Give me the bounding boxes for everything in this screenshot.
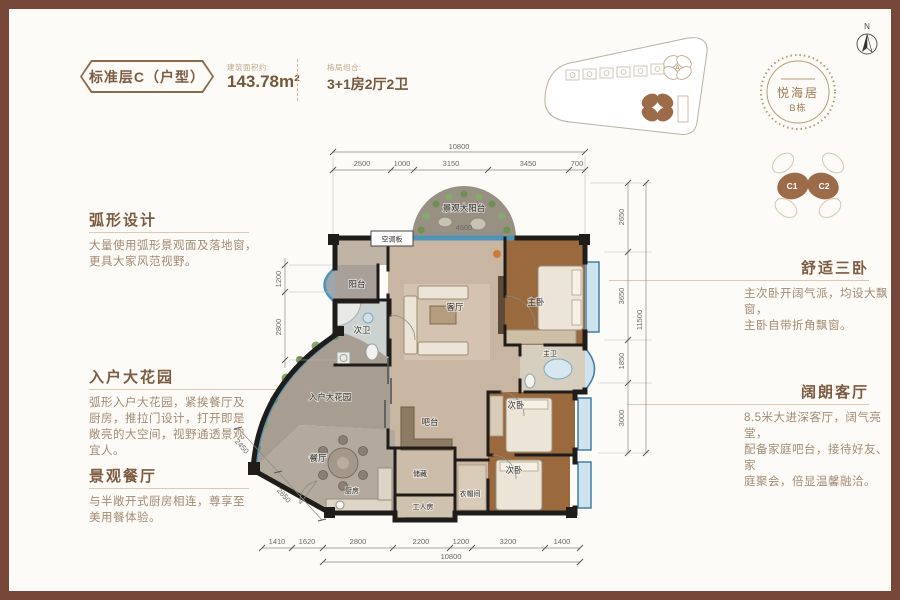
dim-bot-7: 1400 (554, 537, 571, 546)
label-bed2: 次卧 (507, 400, 525, 410)
dim-top-5: 700 (571, 159, 584, 168)
label-storage: 储藏 (413, 469, 427, 478)
dim-bot-5: 1200 (453, 537, 470, 546)
label-cloak: 衣帽间 (460, 489, 481, 498)
label-balcony-top: 景观大阳台 (443, 203, 486, 213)
dim-top-4: 3450 (520, 159, 537, 168)
dim-bottom-total: 10800 (441, 552, 462, 561)
dim-right-3: 1850 (617, 353, 626, 370)
label-master: 主卧 (527, 297, 545, 307)
dim-top-total: 10800 (449, 142, 470, 151)
dim-bot-4: 2200 (413, 537, 430, 546)
compass-icon: N (857, 22, 877, 54)
brand-building: B栋 (789, 102, 806, 113)
label-balcony-left: 阳台 (348, 279, 365, 289)
dim-bot-1: 1410 (269, 537, 286, 546)
unit-badges: C1 C2 (769, 149, 848, 221)
dim-bot-6: 3200 (500, 537, 517, 546)
site-label-box (678, 96, 688, 122)
label-bath2: 次卫 (353, 325, 371, 335)
floorplan-poster: 标准层C（户型） 建筑面积约: 143.78m² 格局组合: 3+1房2厅2卫 … (0, 0, 900, 600)
dim-left-2: 2800 (274, 319, 283, 336)
site-tower-a-label: A (675, 65, 680, 72)
ac-panel-label: 空调板 (382, 235, 403, 244)
unit-c2-label: C2 (819, 181, 830, 191)
dim-balcony: 4600 (456, 223, 473, 232)
dim-right-total: 11500 (635, 310, 644, 330)
label-bar: 吧台 (421, 417, 438, 427)
label-dining: 餐厅 (309, 453, 327, 463)
label-maid: 工人房 (413, 502, 434, 511)
dim-left-1: 1200 (274, 271, 283, 288)
site-tower-b-label: B (655, 104, 660, 113)
compass-n-label: N (864, 22, 870, 31)
unit-c1-label: C1 (787, 181, 798, 191)
label-bed3: 次卧 (505, 465, 523, 475)
dim-right-2: 3650 (617, 288, 626, 305)
dim-slant-1: 2450 (233, 437, 251, 455)
dim-top-2: 1000 (394, 159, 411, 168)
label-living: 客厅 (446, 302, 464, 312)
brand-logo: 悦海居 B栋 (761, 55, 835, 129)
dim-top-3: 3150 (443, 159, 460, 168)
label-kitchen: 厨房 (345, 486, 359, 495)
dim-bot-2: 1620 (299, 537, 316, 546)
dim-top-1: 2500 (354, 159, 371, 168)
floorplan-graphics: .dim{font:7.5px "Liberation Sans",sans-s… (9, 9, 891, 591)
brand-name: 悦海居 (777, 85, 819, 100)
dim-right-1: 2650 (617, 209, 626, 226)
dim-right-4: 3000 (617, 410, 626, 427)
dim-bot-3: 2800 (350, 537, 367, 546)
site-plan: A B (545, 38, 707, 135)
ac-panel: 空调板 (371, 231, 413, 246)
label-garden: 入户大花园 (309, 392, 352, 402)
bed3-furniture (458, 460, 542, 510)
label-master-bath: 主卫 (543, 349, 557, 358)
